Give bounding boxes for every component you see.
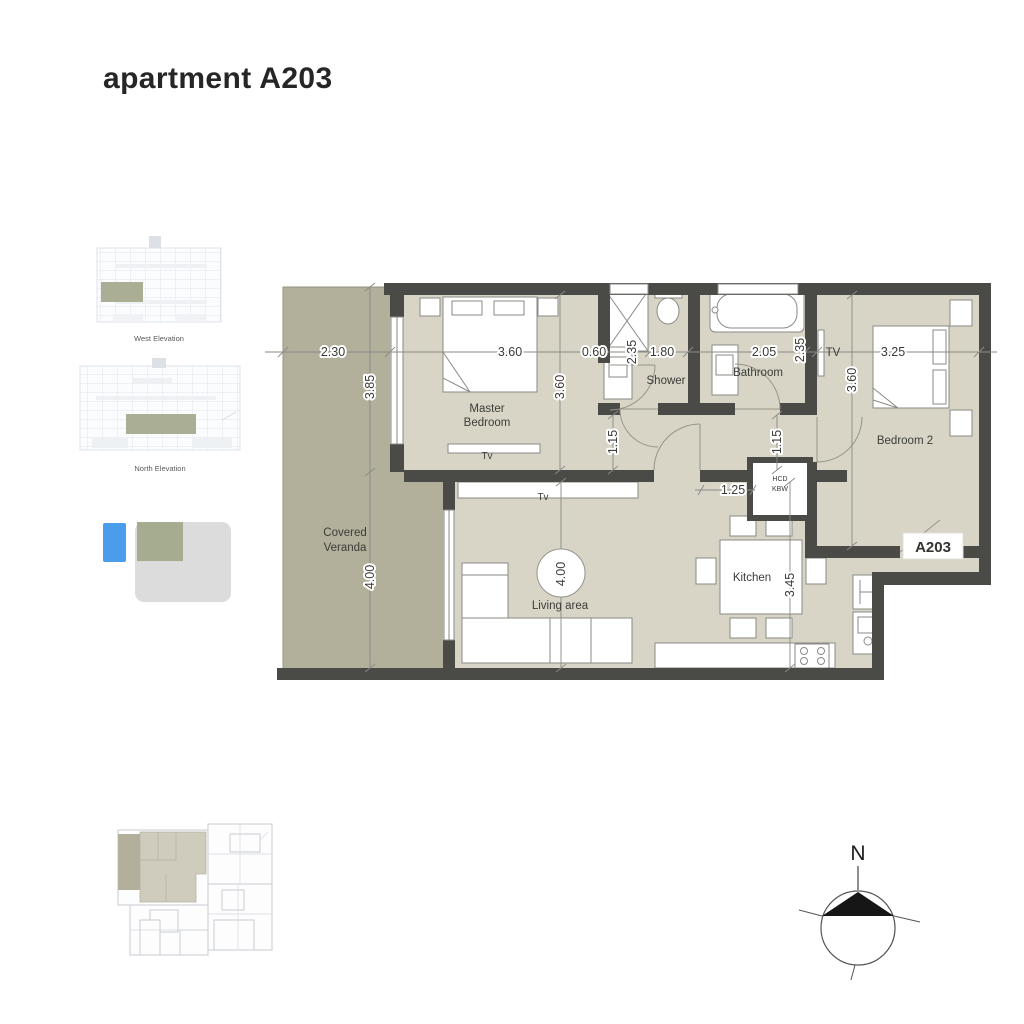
north-elevation-thumbnail: North Elevation: [72, 356, 248, 473]
dim-bathroom-width: 2.05: [752, 345, 776, 359]
label-master-line2: Bedroom: [464, 417, 511, 429]
dim-entry-width: 1.25: [721, 483, 745, 497]
legend-olive-swatch: [137, 522, 183, 561]
label-shower: Shower: [647, 375, 686, 387]
west-elevation-caption: West Elevation: [85, 334, 233, 343]
dim-kitchen-height: 3.45: [783, 573, 797, 597]
key-plan-veranda-highlight: [118, 834, 140, 890]
north-elevation-drawing: [72, 356, 248, 456]
label-tv-living: Tv: [537, 492, 548, 503]
dim-veranda-height-2: 4.00: [363, 565, 377, 589]
dim-shower-width: 1.80: [650, 345, 674, 359]
dim-master-height: 3.60: [553, 375, 567, 399]
unit-badge: A203: [903, 533, 963, 559]
legend: [103, 522, 243, 607]
west-elevation-highlight: [101, 282, 143, 302]
dim-bedroom2-width: 3.25: [881, 345, 905, 359]
dim-wardrobe-depth: 2.35: [625, 340, 639, 364]
north-arrow-label: N: [850, 842, 865, 865]
dim-hall-1: 1.15: [606, 430, 620, 454]
label-veranda-line2: Veranda: [324, 542, 367, 554]
dim-nook-width: 0.60: [582, 345, 606, 359]
key-plan: [110, 810, 280, 967]
floor-plan-drawing: 2.30 3.60 0.60 2.35 1.80 2.05 2.35 3.25 …: [260, 258, 1005, 688]
label-master-line1: Master: [469, 403, 504, 415]
label-kitchen: Kitchen: [733, 572, 771, 584]
label-closet-line2: KBW: [772, 486, 788, 493]
west-elevation-drawing: [85, 234, 233, 326]
unit-badge-label: A203: [915, 539, 951, 556]
label-tv-bedroom2: TV: [826, 347, 841, 359]
label-bathroom: Bathroom: [733, 367, 783, 379]
north-elevation-caption: North Elevation: [72, 464, 248, 473]
label-closet-line1: HCD: [772, 476, 787, 483]
label-tv-master: Tv: [481, 451, 492, 462]
dim-hall-2: 1.15: [770, 430, 784, 454]
dim-living-height: 4.00: [554, 562, 568, 586]
key-plan-unit-highlight: [140, 832, 206, 874]
dim-master-width: 3.60: [498, 345, 522, 359]
north-arrow: N: [795, 828, 930, 988]
label-living: Living area: [532, 600, 589, 612]
sheet: apartment A203 West Elevation: [0, 0, 1024, 1024]
dim-veranda-width: 2.30: [321, 345, 345, 359]
floor-plan: 2.30 3.60 0.60 2.35 1.80 2.05 2.35 3.25 …: [260, 258, 1005, 693]
north-elevation-highlight: [126, 414, 196, 434]
north-arrow-drawing: N: [795, 828, 930, 983]
legend-blue-swatch: [103, 523, 126, 562]
west-elevation-thumbnail: West Elevation: [85, 234, 233, 343]
label-veranda-line1: Covered: [323, 527, 366, 539]
page-title: apartment A203: [103, 62, 333, 96]
dim-bedroom2-height: 3.60: [845, 368, 859, 392]
dim-bathroom-depth: 2.35: [793, 338, 807, 362]
label-bedroom2: Bedroom 2: [877, 435, 933, 447]
key-plan-drawing: [110, 810, 280, 962]
dim-veranda-height-1: 3.85: [363, 375, 377, 399]
north-arrow-needle: [822, 892, 894, 916]
